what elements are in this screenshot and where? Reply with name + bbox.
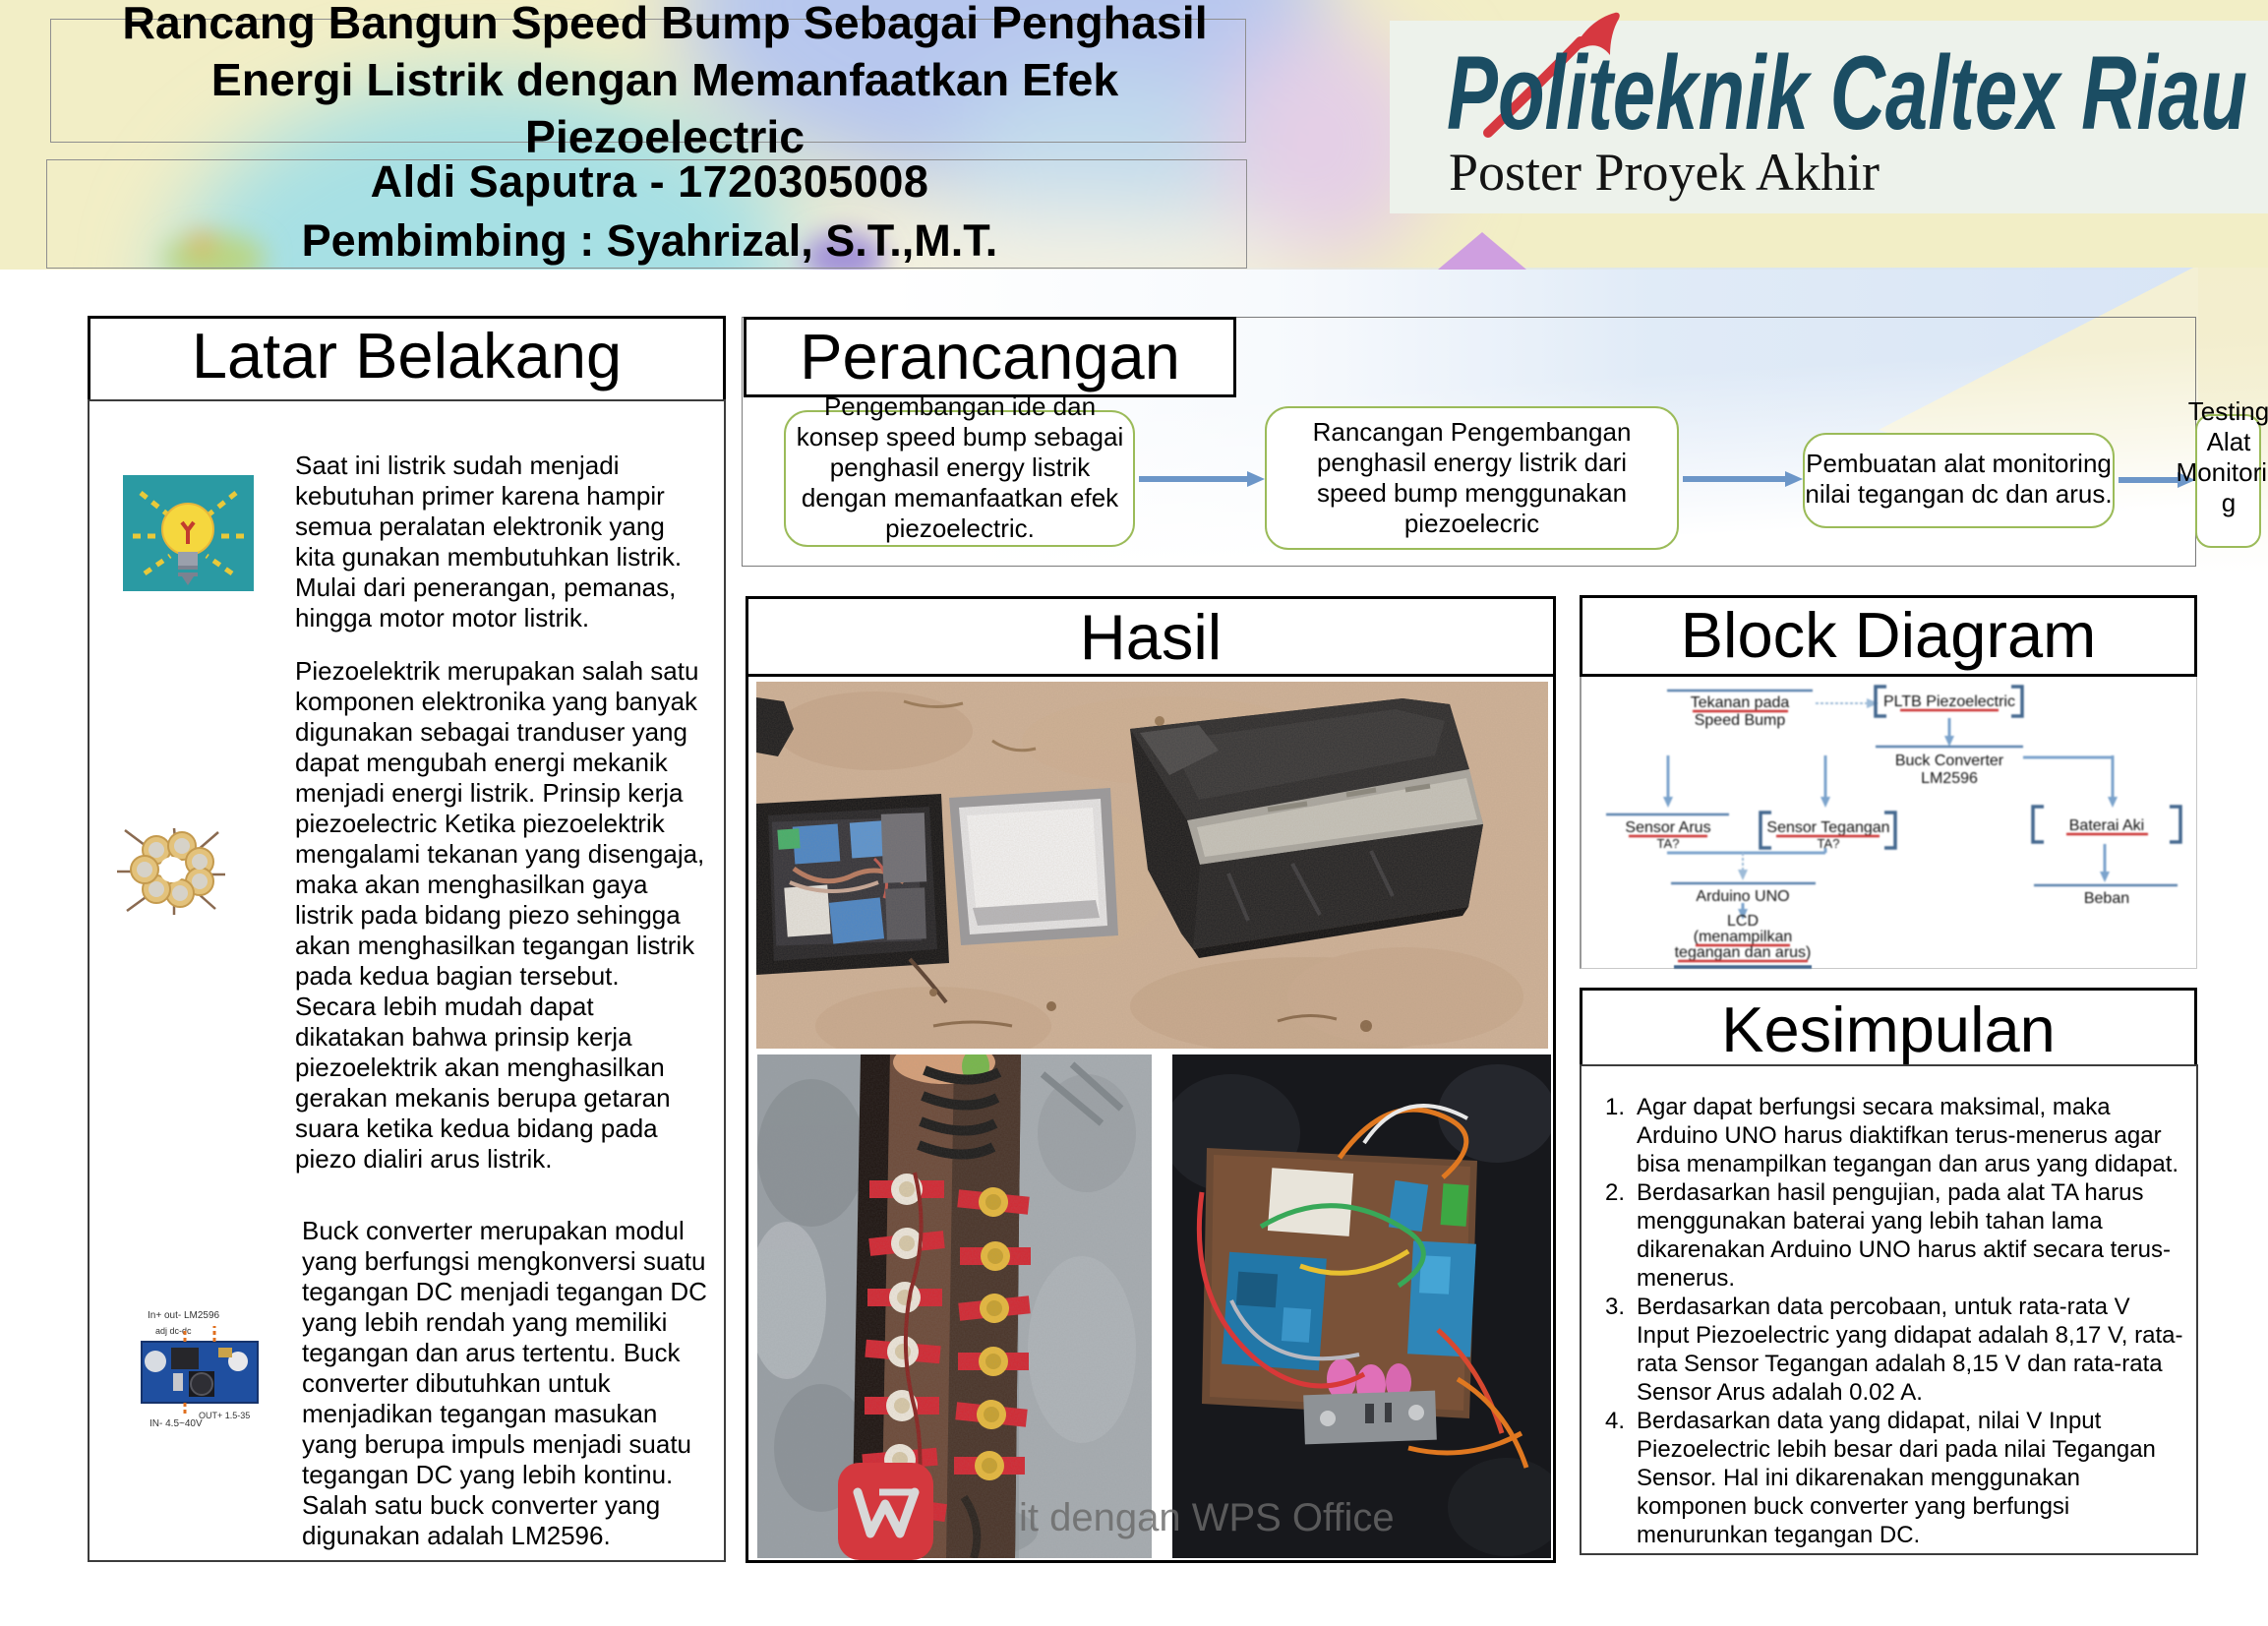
svg-text:OUT+ 1.5-35: OUT+ 1.5-35 — [199, 1411, 250, 1420]
svg-text:(menampilkan: (menampilkan — [1694, 929, 1792, 945]
svg-text:TA?: TA? — [1818, 836, 1840, 851]
svg-text:PLTB Piezoelectric: PLTB Piezoelectric — [1883, 693, 2015, 710]
svg-text:Baterai Aki: Baterai Aki — [2069, 817, 2144, 834]
svg-text:In+ out- LM2596: In+ out- LM2596 — [148, 1310, 220, 1321]
svg-text:Arduino UNO: Arduino UNO — [1696, 888, 1789, 905]
svg-text:Tekanan pada: Tekanan pada — [1691, 694, 1790, 711]
svg-text:LCD: LCD — [1727, 913, 1759, 930]
svg-text:Speed Bump: Speed Bump — [1695, 712, 1786, 729]
svg-text:Sensor Tegangan: Sensor Tegangan — [1766, 819, 1889, 836]
svg-text:Poster Proyek Akhir: Poster Proyek Akhir — [1449, 143, 1880, 202]
svg-text:TA?: TA? — [1657, 836, 1680, 851]
svg-text:Beban: Beban — [2084, 890, 2129, 907]
svg-text:IN- 4.5~40V: IN- 4.5~40V — [149, 1418, 203, 1429]
svg-text:LM2596: LM2596 — [1921, 770, 1978, 787]
svg-text:tegangan dan arus): tegangan dan arus) — [1675, 944, 1812, 961]
svg-text:Sensor Arus: Sensor Arus — [1625, 819, 1710, 836]
svg-text:Politeknik Caltex Riau: Politeknik Caltex Riau — [1447, 33, 2247, 151]
svg-text:Buck Converter: Buck Converter — [1895, 753, 2004, 769]
